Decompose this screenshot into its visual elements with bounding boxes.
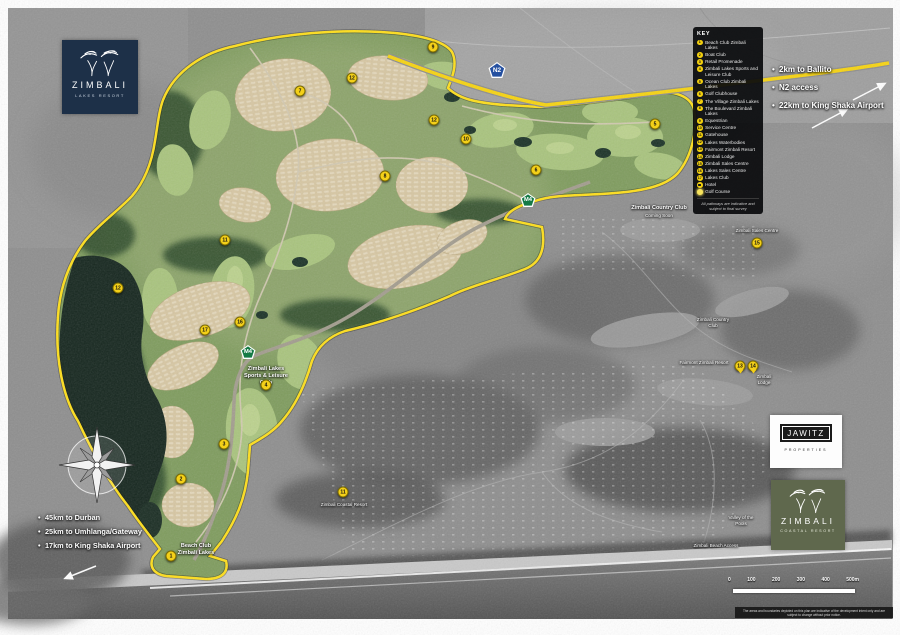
m4-route-shield: M4 <box>241 345 256 359</box>
m4-route-label: M4 <box>522 194 534 205</box>
scale-tick: 0 <box>728 577 731 583</box>
key-item-label: Lakes Sales Centre <box>705 168 746 174</box>
label-beach-club: Beach Club Zimbali Lakes <box>175 543 217 557</box>
key-item-label: Fairmont Zimbali Resort <box>705 147 755 153</box>
logo-tagline: LAKES RESORT <box>75 93 125 98</box>
key-item-label: Lakes Club <box>705 175 728 181</box>
label-fairmont: Fairmont Zimbali Resort <box>664 360 744 366</box>
scale-tick: 300 <box>797 577 805 583</box>
key-marker-icon: 17 <box>697 175 703 181</box>
key-marker-icon: 16 <box>697 168 703 174</box>
key-item: 5Ocean Club Zimbali Lakes <box>697 79 759 90</box>
key-item-label: Zimbali Sales Centre <box>705 161 749 167</box>
key-item-label: Boat Club <box>705 52 726 58</box>
jawitz-wordmark: JAWITZ <box>780 424 832 442</box>
northeast-distance-notes: 2km to Ballito N2 access 22km to King Sh… <box>772 61 884 115</box>
resort-map-page: N2 M4 M4 Zimbali Lakes Sports & Leisure … <box>0 0 900 635</box>
label-country-club-coming: Zimbali Country Club <box>614 205 704 212</box>
zimbali-lakes-logo: ZIMBALI LAKES RESORT <box>62 40 138 114</box>
scale-tick: 100 <box>747 577 755 583</box>
map-marker: 17 <box>200 325 211 336</box>
key-item: 10Service Centre <box>697 125 759 131</box>
map-marker: 12 <box>429 115 440 126</box>
key-marker-icon: 12 <box>697 140 703 146</box>
map-key-panel: KEY 1Beach Club Zimbali Lakes 2Boat Club… <box>693 27 763 214</box>
logo-name: ZIMBALI <box>72 80 128 90</box>
distance-note: 45km to Durban <box>38 511 142 525</box>
map-marker: 2 <box>176 474 187 485</box>
key-marker-icon: 3 <box>697 59 703 65</box>
key-marker-icon: 8 <box>697 106 703 112</box>
distance-note: 22km to King Shaka Airport <box>772 97 884 115</box>
scale-tick: 400 <box>821 577 829 583</box>
map-marker: 10 <box>461 134 472 145</box>
compass-rose <box>54 422 140 508</box>
distance-note: 2km to Ballito <box>772 61 884 79</box>
key-item: 8The Boulevard Zimbali Lakes <box>697 106 759 117</box>
key-marker-icon: 14 <box>697 154 703 160</box>
distance-note: N2 access <box>772 79 884 97</box>
jawitz-properties-logo: JAWITZ PROPERTIES <box>770 415 842 468</box>
key-item: 16Lakes Sales Centre <box>697 168 759 174</box>
n2-route-label: N2 <box>490 63 504 76</box>
m4-route-shield: M4 <box>521 193 536 207</box>
key-marker-icon: 1 <box>697 40 703 46</box>
trees-icon <box>78 47 122 77</box>
distance-note: 17km to King Shaka Airport <box>38 539 142 553</box>
logo-name: ZIMBALI <box>781 516 835 526</box>
key-item-label: Service Centre <box>705 125 736 131</box>
map-marker: 15 <box>752 238 763 249</box>
key-item-label: Ocean Club Zimbali Lakes <box>705 79 759 90</box>
key-marker-icon: 7 <box>697 99 703 105</box>
map-marker: 7 <box>295 86 306 97</box>
key-item-label: The Boulevard Zimbali Lakes <box>705 106 759 117</box>
key-item-label: Zimbali Lakes Sports and Leisure Club <box>705 66 759 77</box>
scale-bar <box>733 589 855 593</box>
key-marker-icon: 2 <box>697 52 703 58</box>
key-item: 17Lakes Club <box>697 175 759 181</box>
key-item-label: Equestrian <box>705 118 727 124</box>
key-item-label: Hotel <box>705 182 716 188</box>
map-marker: 9 <box>428 42 439 53</box>
trees-icon <box>787 486 829 514</box>
key-item: 9Equestrian <box>697 118 759 124</box>
key-item-label: Zimbali Lodge <box>705 154 734 160</box>
key-marker-icon: 15 <box>697 161 703 167</box>
key-item-label: Lakes Waterbodies <box>705 140 745 146</box>
distance-note: 25km to Umhlanga/Gateway <box>38 525 142 539</box>
key-item-label: Golf Clubhouse <box>705 91 737 97</box>
logo-tagline: PROPERTIES <box>784 448 827 452</box>
key-item-golf: Golf Course <box>697 189 759 195</box>
m4-route-label: M4 <box>242 346 254 357</box>
key-title: KEY <box>697 31 759 37</box>
map-marker: 5 <box>650 119 661 130</box>
map-marker: 4 <box>261 380 272 391</box>
key-item-label: The Village Zimbali Lakes <box>705 99 759 105</box>
map-marker: 3 <box>219 439 230 450</box>
key-item: 1Beach Club Zimbali Lakes <box>697 40 759 51</box>
key-item-label: Retail Promenade <box>705 59 743 65</box>
label-coastal-resort: Zimbali Coastal Resort <box>304 502 384 508</box>
key-marker-icon: 11 <box>697 132 703 138</box>
label-beach-access: Zimbali Beach Access <box>681 543 751 549</box>
key-item: 7The Village Zimbali Lakes <box>697 99 759 105</box>
label-valley-of-the-pools: Valley of the Pools <box>725 515 757 526</box>
scale-tick: 500m <box>846 577 859 583</box>
key-marker-icon: 9 <box>697 118 703 124</box>
zimbali-coastal-logo: ZIMBALI COASTAL RESORT <box>771 480 845 550</box>
key-item: 11Gatehouse <box>697 132 759 138</box>
scale-bar-ticks: 0 100 200 300 400 500m <box>728 577 859 583</box>
footer-disclaimer: The areas and boundaries depicted on thi… <box>735 607 893 618</box>
key-item: 14Zimbali Lodge <box>697 154 759 160</box>
map-marker: 16 <box>235 317 246 328</box>
map-marker: 11 <box>220 235 231 246</box>
logo-tagline: COASTAL RESORT <box>780 529 836 533</box>
key-item-hotel: Hotel <box>697 182 759 188</box>
key-item: 2Boat Club <box>697 52 759 58</box>
hotel-icon <box>697 182 703 188</box>
southwest-distance-notes: 45km to Durban 25km to Umhlanga/Gateway … <box>38 511 142 553</box>
label-country-club: Zimbali Country Club <box>695 317 731 328</box>
key-marker-icon: 6 <box>697 91 703 97</box>
map-marker: 6 <box>531 165 542 176</box>
key-item: 13Fairmont Zimbali Resort <box>697 147 759 153</box>
map-marker-pin: 13 <box>735 361 746 372</box>
key-marker-icon: 10 <box>697 125 703 131</box>
map-marker: 1 <box>166 551 177 562</box>
label-sales-centre: Zimbali Sales Centre <box>722 228 792 234</box>
key-item: 4Zimbali Lakes Sports and Leisure Club <box>697 66 759 77</box>
key-item: 15Zimbali Sales Centre <box>697 161 759 167</box>
map-marker: 12 <box>113 283 124 294</box>
key-item: 6Golf Clubhouse <box>697 91 759 97</box>
golf-course-icon <box>697 189 703 195</box>
key-marker-icon: 5 <box>697 79 703 85</box>
map-marker: 8 <box>380 171 391 182</box>
key-footnote: All pathways are indicative and subject … <box>697 198 759 212</box>
key-item: 12Lakes Waterbodies <box>697 140 759 146</box>
key-marker-icon: 4 <box>697 66 703 72</box>
key-marker-icon: 13 <box>697 147 703 153</box>
map-marker-pin: 14 <box>748 361 759 372</box>
key-item-label: Gatehouse <box>705 132 728 138</box>
key-item: 3Retail Promenade <box>697 59 759 65</box>
key-item-label: Golf Course <box>705 189 730 195</box>
map-marker: 12 <box>347 73 358 84</box>
key-item-label: Beach Club Zimbali Lakes <box>705 40 759 51</box>
n2-route-shield: N2 <box>489 62 506 78</box>
scale-tick: 200 <box>772 577 780 583</box>
label-coming-soon: Coming Soon <box>614 213 704 219</box>
map-marker: 11 <box>338 487 349 498</box>
